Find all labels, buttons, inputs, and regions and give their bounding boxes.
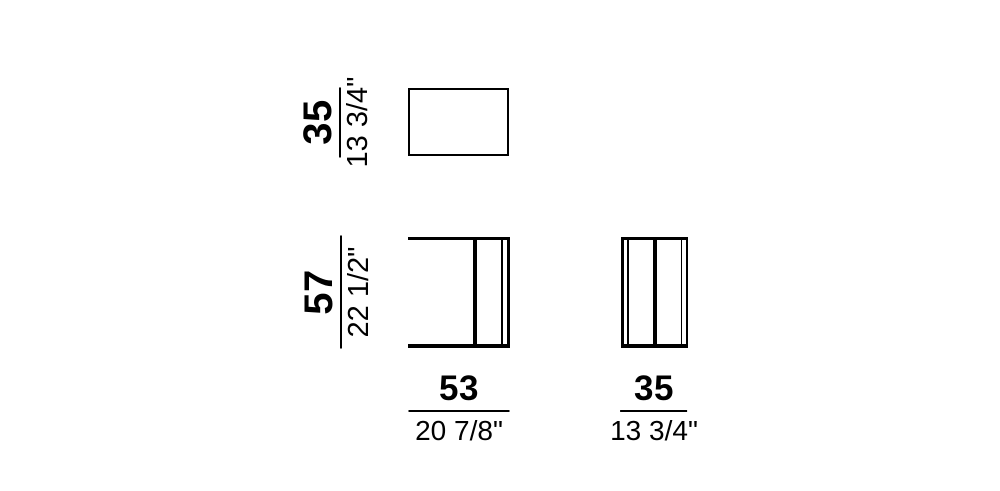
side-view-left-inner-line (627, 237, 629, 348)
dim-height-rule (340, 236, 342, 349)
dim-label-top-depth: 35 13 3/4" (301, 77, 373, 168)
front-view-inner-panel (473, 237, 477, 348)
side-view-right-edge (686, 237, 689, 348)
dim-label-bottom-depth: 35 13 3/4" (610, 370, 698, 445)
dim-height-cm: 57 (302, 269, 336, 315)
side-view-right-inner-line (681, 237, 683, 348)
dim-bottom-depth-inch: 13 3/4" (610, 417, 698, 445)
side-view-drawing (621, 237, 688, 348)
dimension-drawing-canvas: 35 13 3/4" 57 22 1/2" 53 20 7/8" 35 13 3… (0, 0, 1000, 491)
dim-width-cm: 53 (439, 370, 479, 409)
dim-label-height: 57 22 1/2" (302, 236, 374, 349)
dim-width-rule (409, 410, 510, 412)
dim-bottom-depth-cm: 35 (634, 370, 674, 409)
dim-width-inch: 20 7/8" (415, 417, 503, 445)
side-view-left-edge (621, 237, 624, 348)
front-view-bottom-edge (408, 344, 510, 348)
dim-height-inch: 22 1/2" (345, 247, 374, 338)
front-view-drawing (408, 237, 510, 348)
dim-top-depth-rule (339, 87, 341, 157)
front-view-panel-line (501, 237, 503, 348)
dim-label-width: 53 20 7/8" (409, 370, 510, 445)
dim-top-depth-inch: 13 3/4" (344, 77, 373, 168)
dim-bottom-depth-rule (620, 410, 687, 412)
dim-top-depth-cm: 35 (301, 99, 335, 145)
top-view-outline (408, 88, 509, 156)
front-view-right-edge (507, 237, 510, 348)
front-view-top-edge (408, 237, 510, 240)
side-view-center-panel (653, 237, 657, 348)
